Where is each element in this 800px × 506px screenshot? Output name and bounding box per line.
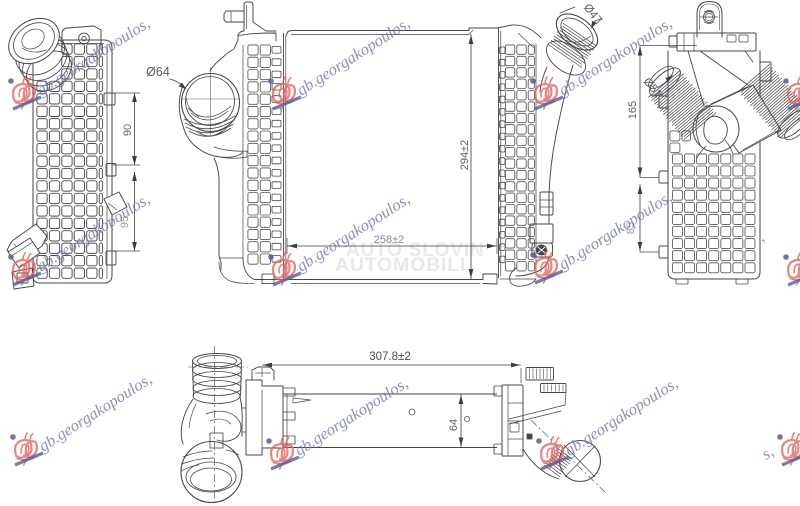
svg-text:90: 90: [122, 124, 134, 136]
svg-text:294±2: 294±2: [459, 140, 471, 171]
svg-text:64: 64: [448, 419, 460, 431]
svg-text:165: 165: [627, 101, 639, 119]
svg-text:AUTOMOBILI: AUTOMOBILI: [335, 254, 466, 276]
svg-text:258±2: 258±2: [374, 234, 405, 246]
svg-text:307.8±2: 307.8±2: [369, 351, 411, 363]
svg-text:Ø64: Ø64: [146, 65, 170, 79]
